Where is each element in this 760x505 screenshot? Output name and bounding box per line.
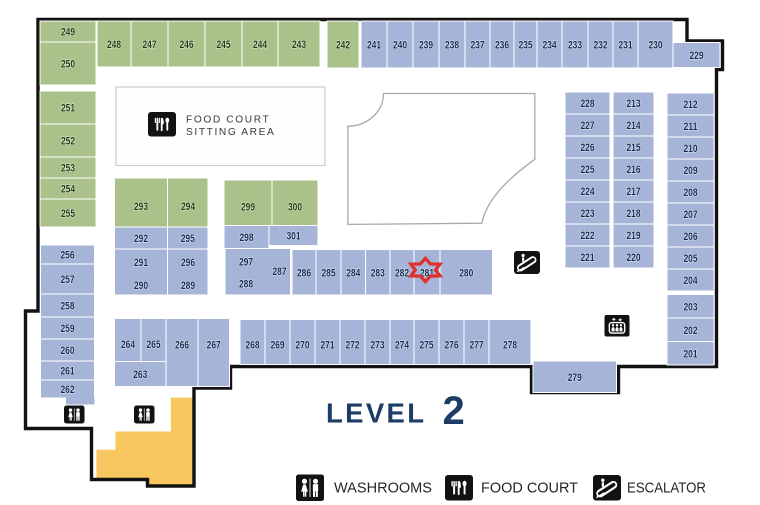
svg-text:255: 255 bbox=[61, 208, 75, 220]
svg-text:ESCALATOR: ESCALATOR bbox=[627, 481, 706, 497]
svg-text:241: 241 bbox=[367, 40, 381, 52]
svg-text:216: 216 bbox=[626, 164, 640, 176]
svg-text:224: 224 bbox=[580, 186, 595, 198]
svg-text:FOOD COURT: FOOD COURT bbox=[481, 481, 578, 497]
svg-text:292: 292 bbox=[134, 233, 148, 245]
svg-text:217: 217 bbox=[626, 186, 640, 198]
svg-text:264: 264 bbox=[121, 339, 136, 351]
svg-text:290: 290 bbox=[134, 280, 148, 292]
svg-text:287: 287 bbox=[272, 266, 286, 278]
svg-text:247: 247 bbox=[142, 39, 156, 51]
svg-text:236: 236 bbox=[495, 40, 509, 52]
svg-text:223: 223 bbox=[580, 208, 594, 220]
svg-text:270: 270 bbox=[295, 340, 309, 352]
svg-text:209: 209 bbox=[683, 165, 697, 177]
svg-text:214: 214 bbox=[626, 120, 641, 132]
svg-text:227: 227 bbox=[580, 120, 594, 132]
svg-text:239: 239 bbox=[419, 40, 433, 52]
svg-text:221: 221 bbox=[580, 252, 594, 264]
svg-text:226: 226 bbox=[580, 142, 594, 154]
svg-text:258: 258 bbox=[60, 301, 74, 313]
svg-text:248: 248 bbox=[107, 39, 121, 51]
svg-text:229: 229 bbox=[689, 50, 703, 62]
svg-text:225: 225 bbox=[580, 164, 594, 176]
svg-text:273: 273 bbox=[370, 340, 384, 352]
svg-text:265: 265 bbox=[146, 339, 160, 351]
svg-text:288: 288 bbox=[239, 279, 253, 291]
svg-text:279: 279 bbox=[568, 372, 582, 384]
svg-text:260: 260 bbox=[60, 345, 74, 357]
svg-text:218: 218 bbox=[626, 208, 640, 220]
svg-text:277: 277 bbox=[469, 340, 483, 352]
svg-text:252: 252 bbox=[61, 136, 75, 148]
svg-text:LEVEL: LEVEL bbox=[326, 398, 424, 429]
svg-text:298: 298 bbox=[239, 232, 253, 244]
svg-text:275: 275 bbox=[419, 340, 433, 352]
svg-text:272: 272 bbox=[345, 340, 359, 352]
svg-text:296: 296 bbox=[181, 257, 195, 269]
svg-text:210: 210 bbox=[683, 143, 697, 155]
svg-text:230: 230 bbox=[648, 40, 662, 52]
svg-text:219: 219 bbox=[626, 230, 640, 242]
svg-text:240: 240 bbox=[393, 40, 407, 52]
svg-text:212: 212 bbox=[683, 99, 697, 111]
svg-text:282: 282 bbox=[395, 267, 409, 279]
svg-text:262: 262 bbox=[60, 384, 74, 396]
svg-text:FOOD COURT: FOOD COURT bbox=[186, 115, 270, 126]
svg-text:256: 256 bbox=[60, 250, 74, 262]
svg-text:232: 232 bbox=[593, 40, 607, 52]
svg-text:234: 234 bbox=[542, 40, 557, 52]
svg-text:263: 263 bbox=[133, 369, 147, 381]
svg-text:253: 253 bbox=[61, 163, 75, 175]
svg-text:286: 286 bbox=[297, 267, 311, 279]
svg-text:243: 243 bbox=[292, 39, 306, 51]
svg-text:WASHROOMS: WASHROOMS bbox=[334, 481, 432, 497]
svg-text:238: 238 bbox=[445, 40, 459, 52]
svg-text:276: 276 bbox=[444, 340, 458, 352]
svg-text:295: 295 bbox=[181, 233, 195, 245]
svg-text:293: 293 bbox=[134, 201, 148, 213]
svg-text:213: 213 bbox=[626, 98, 640, 110]
svg-text:204: 204 bbox=[683, 275, 698, 287]
svg-text:299: 299 bbox=[241, 202, 255, 214]
svg-text:246: 246 bbox=[179, 39, 193, 51]
svg-text:SITTING AREA: SITTING AREA bbox=[186, 127, 275, 138]
svg-text:254: 254 bbox=[61, 184, 76, 196]
svg-text:294: 294 bbox=[181, 201, 196, 213]
svg-text:207: 207 bbox=[683, 209, 697, 221]
svg-text:261: 261 bbox=[60, 366, 74, 378]
svg-text:208: 208 bbox=[683, 187, 697, 199]
svg-text:291: 291 bbox=[134, 257, 148, 269]
svg-text:249: 249 bbox=[61, 27, 75, 39]
svg-text:231: 231 bbox=[618, 40, 632, 52]
svg-text:274: 274 bbox=[395, 340, 410, 352]
svg-text:268: 268 bbox=[245, 340, 259, 352]
svg-text:235: 235 bbox=[518, 40, 532, 52]
svg-text:285: 285 bbox=[321, 267, 335, 279]
svg-text:211: 211 bbox=[683, 121, 697, 133]
svg-text:206: 206 bbox=[683, 231, 697, 243]
svg-text:284: 284 bbox=[346, 267, 361, 279]
svg-text:267: 267 bbox=[207, 340, 221, 352]
svg-text:203: 203 bbox=[683, 301, 697, 313]
svg-text:228: 228 bbox=[580, 98, 594, 110]
svg-text:251: 251 bbox=[61, 103, 75, 115]
svg-text:278: 278 bbox=[503, 340, 517, 352]
svg-text:300: 300 bbox=[288, 202, 302, 214]
svg-text:233: 233 bbox=[568, 40, 582, 52]
svg-text:259: 259 bbox=[60, 323, 74, 335]
svg-text:205: 205 bbox=[683, 253, 697, 265]
svg-text:2: 2 bbox=[443, 389, 465, 433]
svg-text:250: 250 bbox=[61, 59, 75, 71]
svg-text:257: 257 bbox=[60, 274, 74, 286]
svg-text:242: 242 bbox=[336, 40, 350, 52]
svg-text:215: 215 bbox=[626, 142, 640, 154]
svg-text:266: 266 bbox=[175, 340, 189, 352]
svg-text:201: 201 bbox=[683, 348, 697, 360]
svg-text:245: 245 bbox=[216, 39, 230, 51]
svg-text:269: 269 bbox=[270, 340, 284, 352]
svg-text:220: 220 bbox=[626, 252, 640, 264]
svg-text:283: 283 bbox=[371, 267, 385, 279]
svg-text:280: 280 bbox=[459, 267, 473, 279]
svg-text:222: 222 bbox=[580, 230, 594, 242]
svg-text:237: 237 bbox=[470, 40, 484, 52]
svg-text:301: 301 bbox=[286, 231, 300, 243]
svg-text:289: 289 bbox=[181, 280, 195, 292]
svg-text:202: 202 bbox=[683, 325, 697, 337]
svg-text:271: 271 bbox=[320, 340, 334, 352]
svg-text:244: 244 bbox=[253, 39, 268, 51]
svg-text:297: 297 bbox=[239, 257, 253, 269]
